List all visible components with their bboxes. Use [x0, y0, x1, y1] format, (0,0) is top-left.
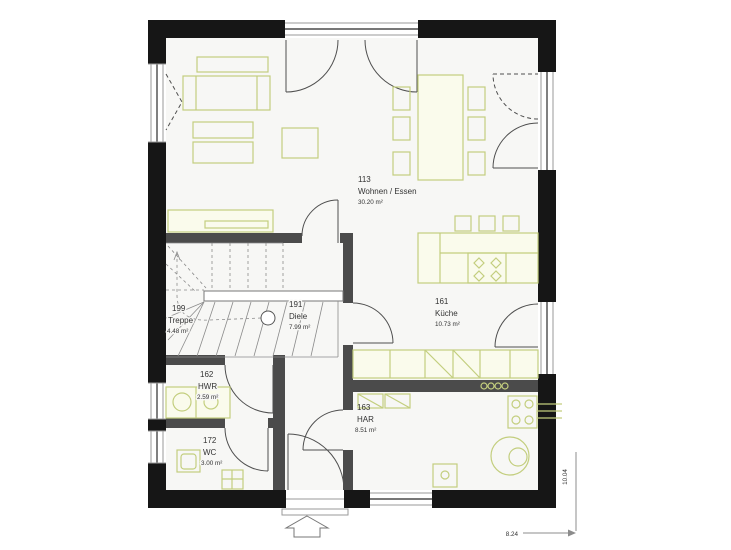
room-name: Treppe: [168, 316, 194, 325]
room-number: 199: [172, 304, 186, 313]
room-area: 7.99 m²: [289, 324, 310, 331]
room-name: Wohnen / Essen: [358, 187, 417, 196]
room-name: WC: [203, 448, 217, 457]
window-hwr-left: [148, 383, 166, 419]
room-area: 10.73 m²: [435, 321, 460, 328]
dimension-width: 8.24: [506, 531, 519, 538]
dimension-height: 10.04: [562, 469, 569, 485]
room-number: 113: [358, 175, 371, 184]
room-number: 191: [289, 300, 303, 309]
room-number: 163: [357, 403, 371, 412]
hwr-fixtures: [166, 387, 230, 418]
room-area: 4.48 m²: [167, 328, 188, 335]
room-area: 8.51 m²: [355, 427, 376, 434]
entrance-arrow-icon: [286, 516, 328, 537]
kitchen-counter: [353, 350, 538, 378]
room-area: 2.59 m²: [197, 394, 218, 401]
room-number: 162: [200, 370, 214, 379]
room-name: HWR: [198, 382, 217, 391]
floor-plan: 113 Wohnen / Essen 30.20 m² 161 Küche 10…: [0, 0, 731, 550]
room-number: 172: [203, 436, 217, 445]
room-area: 30.20 m²: [358, 199, 383, 206]
stair-walkline-start: [261, 311, 275, 325]
dimension-arrow: [568, 530, 576, 537]
room-number: 161: [435, 297, 449, 306]
window-wc-left: [148, 431, 166, 463]
window-har-bottom: [370, 490, 432, 508]
room-name: HAR: [357, 415, 374, 424]
floor-plan-svg: 113 Wohnen / Essen 30.20 m² 161 Küche 10…: [0, 0, 731, 550]
room-name: Küche: [435, 309, 458, 318]
room-name: Diele: [289, 312, 308, 321]
dining-table: [418, 75, 463, 180]
room-area: 3.00 m²: [201, 460, 222, 467]
